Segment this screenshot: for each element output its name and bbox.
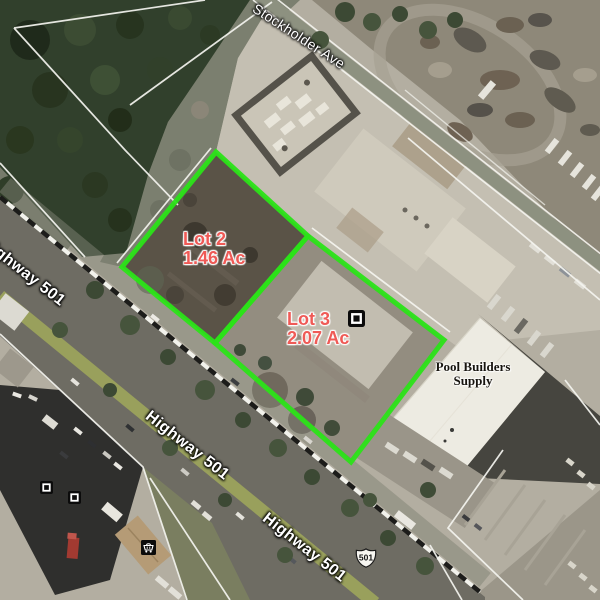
route-shield-501: 501 — [355, 548, 377, 569]
business-name-line2: Supply — [436, 374, 511, 388]
lot-2-label: Lot 2 1.46 Ac — [183, 230, 245, 268]
lot-3-label: Lot 3 2.07 Ac — [287, 310, 349, 348]
lot-3-area: 2.07 Ac — [287, 329, 349, 348]
lot-2-name: Lot 2 — [183, 230, 245, 249]
business-name-line1: Pool Builders — [436, 360, 511, 374]
lot-3-name: Lot 3 — [287, 310, 349, 329]
lot-2-area: 1.46 Ac — [183, 249, 245, 268]
satellite-imagery — [0, 0, 600, 600]
box-marker-icon — [348, 310, 365, 327]
box-marker-icon — [68, 491, 81, 504]
route-number: 501 — [355, 553, 377, 563]
business-label-pool-builders-supply: Pool Builders Supply — [436, 360, 511, 388]
aerial-map-canvas[interactable]: Stockholder Ave Highway 501 Highway 501 … — [0, 0, 600, 600]
box-marker-icon — [40, 481, 53, 494]
shopping-basket-icon — [141, 540, 156, 555]
